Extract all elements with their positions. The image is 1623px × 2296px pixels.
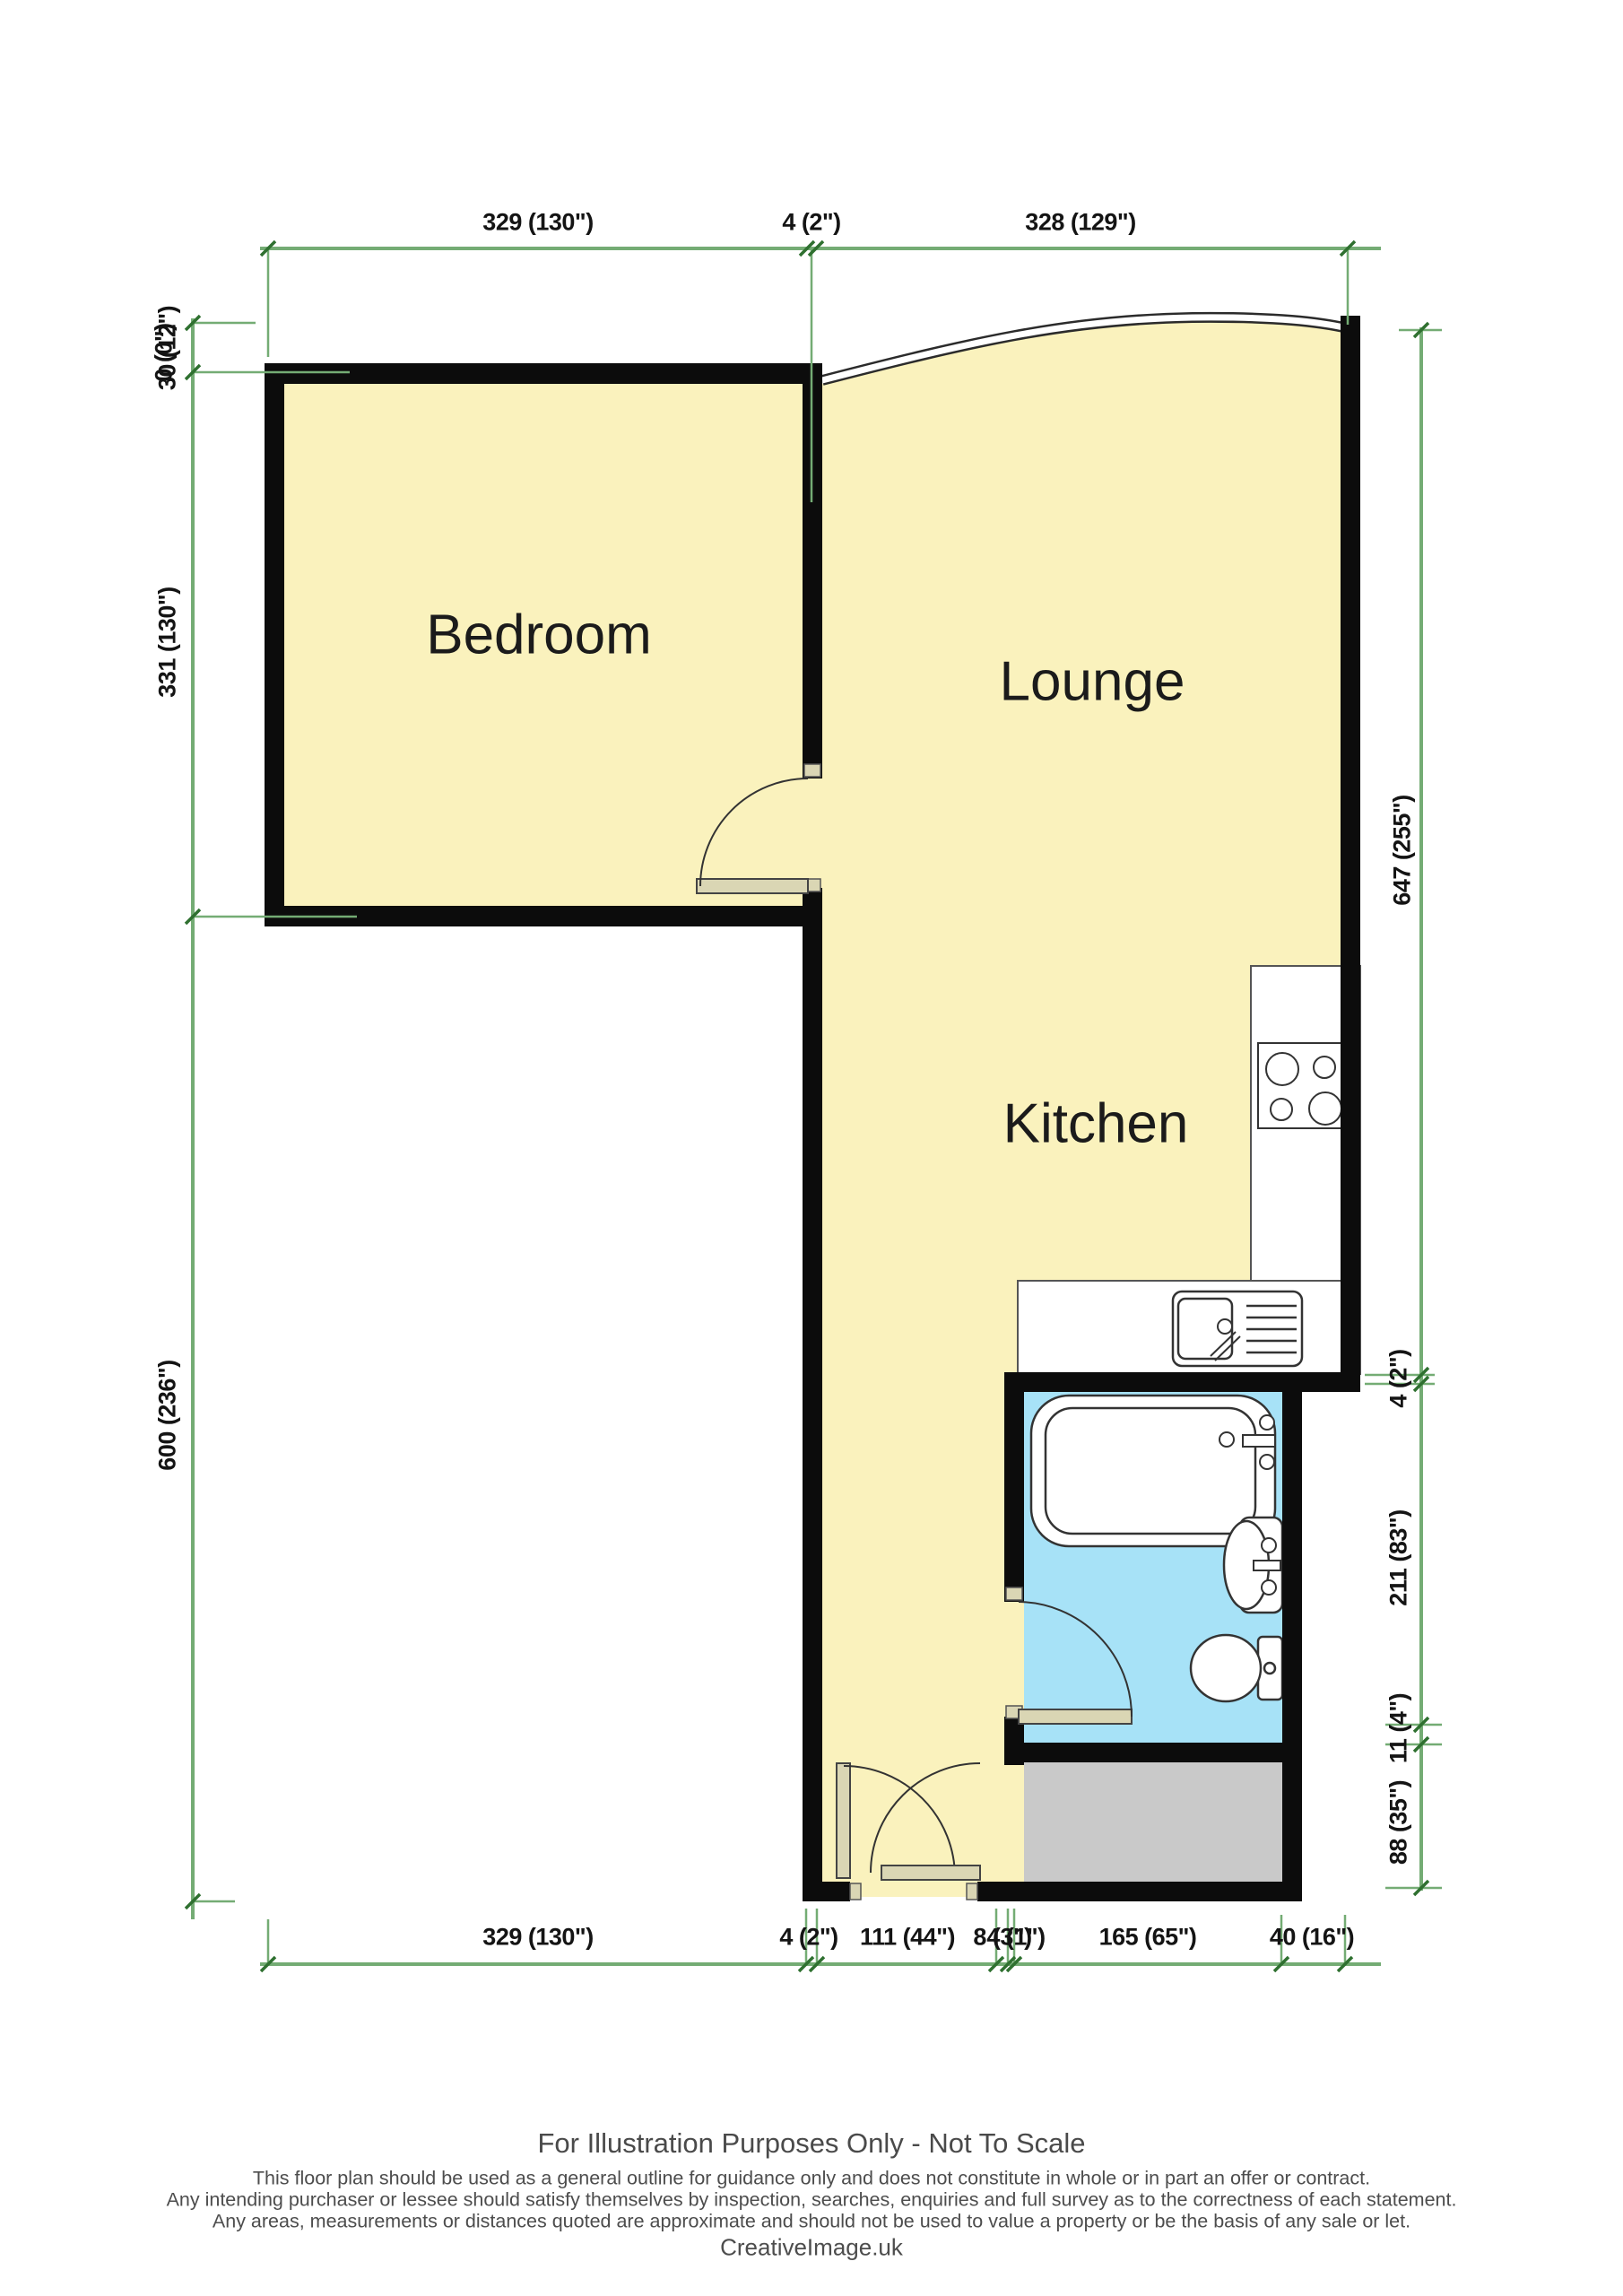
- kitchen-sink-icon: [1173, 1291, 1302, 1366]
- dim-top-1: 329 (130"): [482, 209, 593, 237]
- dim-right-5: 88 (35"): [1385, 1780, 1413, 1865]
- floorplan-drawing: [0, 0, 1623, 2296]
- hall-floor: [1024, 1762, 1282, 1882]
- floorplan-page: Bedroom Lounge Kitchen 329 (130") 4 (2")…: [0, 0, 1623, 2296]
- washbasin-icon: [1224, 1518, 1282, 1613]
- toilet-icon: [1191, 1635, 1282, 1701]
- dim-right-3: 211 (83"): [1385, 1509, 1413, 1605]
- hob-icon: [1258, 1043, 1345, 1128]
- dim-bottom-5: 4 (1"): [986, 1924, 1045, 1952]
- doorway-bedroom: [803, 778, 822, 888]
- dim-right-4: 11 (4"): [1385, 1693, 1413, 1763]
- dim-left-4: 600 (236"): [154, 1360, 182, 1470]
- disclaimer-line-2: Any intending purchaser or lessee should…: [167, 2189, 1457, 2212]
- dim-bottom-6: 165 (65"): [1099, 1924, 1197, 1952]
- dim-left-3: 331 (130"): [154, 587, 182, 697]
- disclaimer-line-3: Any areas, measurements or distances quo…: [213, 2211, 1410, 2233]
- brand-name: CreativeImage.uk: [720, 2234, 903, 2262]
- dim-bottom-7: 40 (16"): [1270, 1924, 1354, 1952]
- dim-top-3: 328 (129"): [1025, 209, 1135, 237]
- dim-left-2: 0 (0"): [151, 323, 178, 381]
- dim-bottom-3: 111 (44"): [860, 1924, 955, 1952]
- disclaimer-title: For Illustration Purposes Only - Not To …: [537, 2127, 1085, 2160]
- doorway-bathroom: [1004, 1602, 1024, 1717]
- dim-top-2: 4 (2"): [782, 209, 840, 237]
- kitchen-label: Kitchen: [1003, 1092, 1189, 1156]
- lounge-label: Lounge: [1000, 650, 1185, 714]
- dim-right-1: 647 (255"): [1389, 795, 1417, 905]
- dim-right-2: 4 (2"): [1385, 1349, 1413, 1407]
- bedroom-label: Bedroom: [426, 604, 652, 667]
- dim-bottom-2: 4 (2"): [779, 1924, 838, 1952]
- dim-bottom-1: 329 (130"): [482, 1924, 593, 1952]
- disclaimer-line-1: This floor plan should be used as a gene…: [253, 2168, 1370, 2190]
